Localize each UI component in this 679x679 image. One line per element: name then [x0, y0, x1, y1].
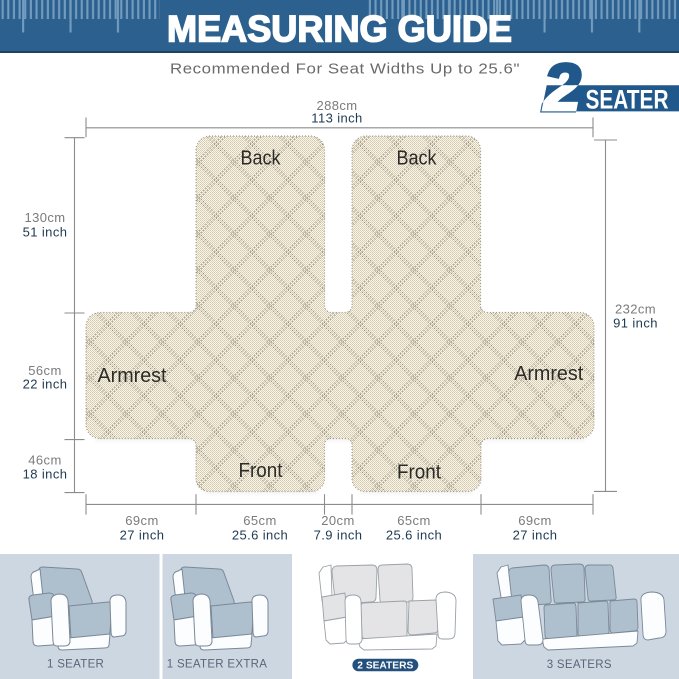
svg-text:130cm: 130cm — [24, 210, 65, 225]
svg-text:91 inch: 91 inch — [613, 316, 658, 331]
svg-text:Armrest: Armrest — [98, 364, 167, 387]
svg-text:Front: Front — [397, 461, 441, 484]
svg-text:MEASURING GUIDE: MEASURING GUIDE — [167, 9, 512, 50]
svg-text:7.9 inch: 7.9 inch — [314, 528, 363, 543]
svg-text:22 inch: 22 inch — [23, 377, 68, 392]
svg-text:65cm: 65cm — [243, 513, 276, 528]
svg-text:25.6 inch: 25.6 inch — [232, 528, 288, 543]
svg-text:Armrest: Armrest — [514, 362, 583, 385]
svg-text:1 SEATER: 1 SEATER — [47, 659, 104, 671]
svg-text:27 inch: 27 inch — [120, 528, 165, 543]
svg-text:Front: Front — [239, 459, 283, 482]
svg-text:2 SEATERS: 2 SEATERS — [357, 660, 413, 672]
svg-text:27 inch: 27 inch — [513, 528, 558, 543]
svg-text:25.6 inch: 25.6 inch — [386, 528, 442, 543]
svg-text:Recommended For Seat Widths Up: Recommended For Seat Widths Up to 25.6" — [170, 61, 520, 78]
svg-text:20cm: 20cm — [321, 513, 354, 528]
svg-text:1 SEATER EXTRA: 1 SEATER EXTRA — [167, 659, 268, 671]
svg-text:69cm: 69cm — [518, 513, 551, 528]
svg-text:69cm: 69cm — [125, 513, 158, 528]
svg-text:3 SEATERS: 3 SEATERS — [547, 659, 612, 671]
svg-text:51 inch: 51 inch — [23, 224, 68, 239]
svg-text:232cm: 232cm — [615, 302, 656, 317]
svg-text:46cm: 46cm — [28, 452, 61, 467]
svg-text:Back: Back — [241, 147, 282, 170]
svg-text:SEATER: SEATER — [586, 85, 669, 115]
svg-text:Back: Back — [397, 147, 438, 170]
svg-text:18 inch: 18 inch — [23, 467, 68, 482]
svg-text:113 inch: 113 inch — [311, 111, 362, 126]
svg-text:65cm: 65cm — [397, 513, 430, 528]
